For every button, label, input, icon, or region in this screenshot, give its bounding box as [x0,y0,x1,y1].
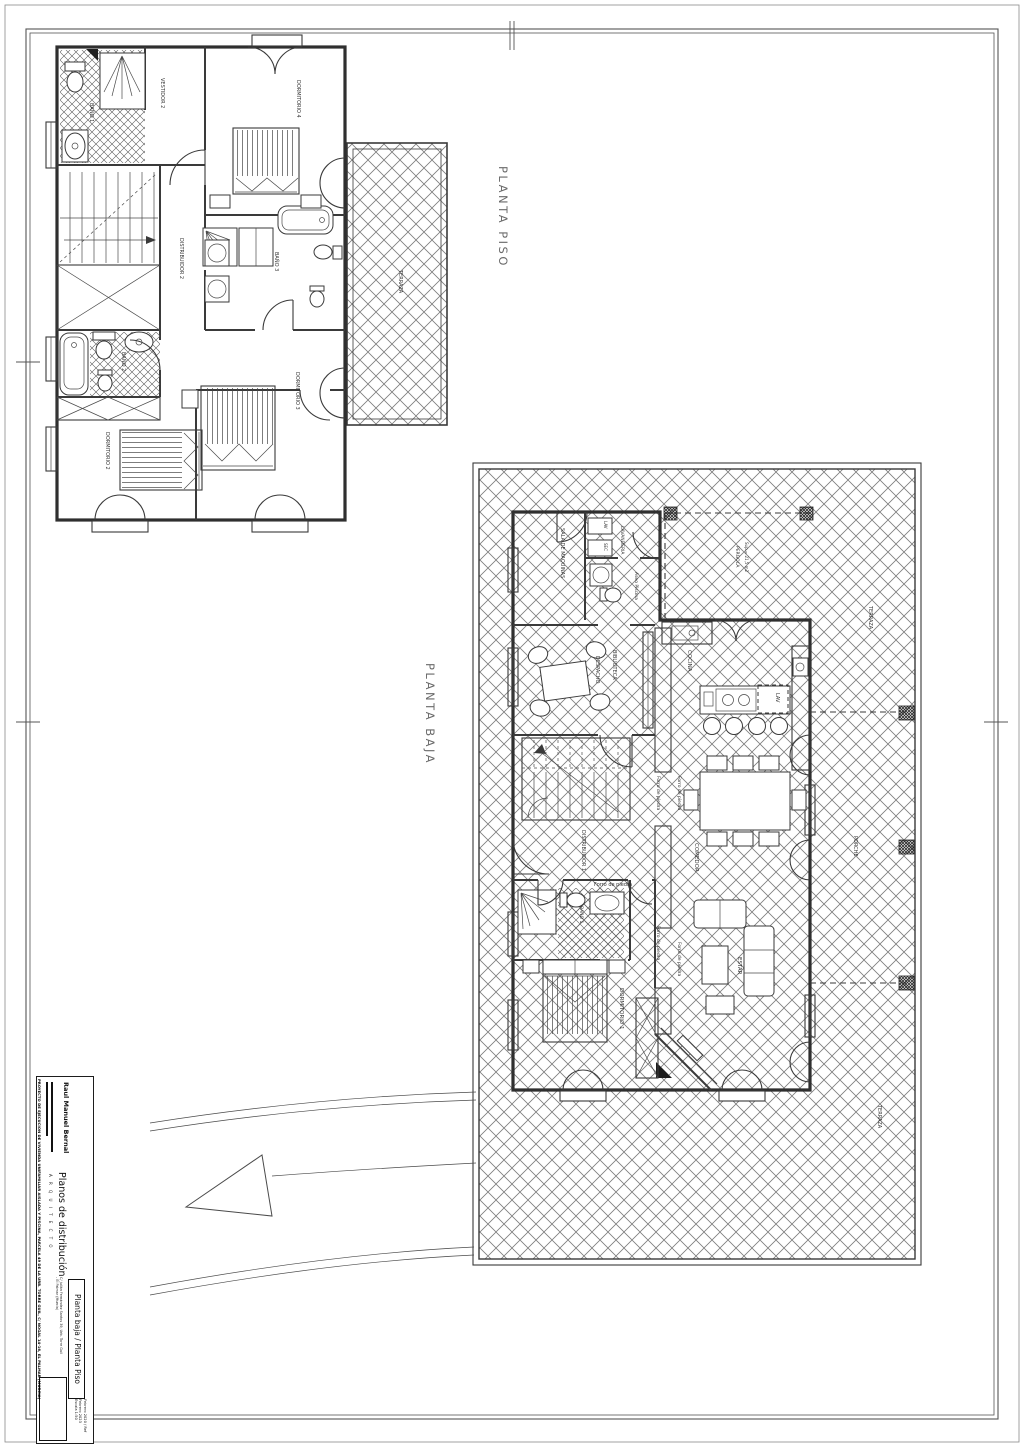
date-ref: Febrero 2020 / Ref Febrero 2023 [78,1399,87,1443]
label-lav-island: LAV [774,693,780,703]
piso-stairs [57,172,160,330]
planta-piso-plan: BAÑO 1 VESTIDOR 2 DORMITORIO 4 DISTRIBUI… [46,35,510,532]
room-label-bano3: BAÑO 3 [273,252,280,271]
piso-bano3 [203,206,342,330]
site-road [150,1092,476,1295]
project-description-line: PROYECTO DE EJECUCION DE VIVIENDA UNIFAM… [37,1079,42,1443]
room-label-bano1-piso: BAÑO 1 [88,103,95,122]
label-pergola-sup: Sup.= 21,5 m2 [744,542,749,573]
room-label-terraza-tr: TERRAZA [867,605,873,630]
plan-title-planta-piso: PLANTA PISO [496,166,510,268]
room-label-porche: PORCHE [852,836,858,857]
piso-bano2 [60,332,160,396]
room-label-bano2: BAÑO 2 [120,352,127,371]
title-block: Raul Manuel Bernal Planos de distribució… [36,1076,94,1444]
room-label-aseo-piscina: Aseo Piscina [633,572,639,600]
date-and-scale: Febrero 2020 / Ref Febrero 2023 Escala 1… [73,1399,87,1443]
label-forro-v2: Forro de piedra [676,776,682,811]
room-label-estar: ESTAR [736,957,742,975]
label-pergola: PERGOLA [734,546,740,568]
piso-bed-dorm4 [210,128,321,208]
title-block-rule-2 [46,1082,48,1136]
room-label-comedor: COMEDOR [693,843,699,872]
room-label-dormitorio4: DORMITORIO 4 [295,80,301,118]
room-label-vestidor2: VESTIDOR 2 [159,78,165,108]
room-label-cocina: COCINA [686,650,692,672]
room-label-terraza-br: TERRAZA [876,1104,882,1129]
room-label-terraza-piso: TERRAZA [397,269,403,294]
label-forro-v3: Forro de piedra [655,926,661,961]
room-label-dormitorio3: DORMITORIO 3 [294,372,300,410]
label-forro-v1: Forro de piedra [655,776,661,811]
piso-bed-dorm2 [120,430,202,490]
piso-windows [46,122,57,471]
drawing-sheet: BAÑO 1 VESTIDOR 2 DORMITORIO 4 DISTRIBUI… [0,0,1024,1447]
room-label-dormitorio2: DORMITORIO 2 [104,432,110,470]
revision-box [39,1377,67,1441]
studio-label: A R Q U I T E C T O [48,1174,53,1250]
room-label-bano1-baja: BAÑO 1 [578,906,585,924]
label-sec: SEC [603,543,608,551]
piso-terraza [347,143,447,425]
label-forro-h: Forro de piedra [594,882,632,888]
room-label-sala-maquinas: SALA DE MAQUINAS [559,528,565,578]
plan-title-planta-baja: PLANTA BAJA [423,663,437,765]
title-block-rule [51,1082,53,1152]
planta-baja-plan: PLANTA BAJA SALA DE MAQUINAS LAVANDERIA … [423,463,921,1265]
label-lav: LAV [603,521,608,529]
room-label-dormitorio1: DORMITORIO 1 [618,988,624,1029]
document-title: Planos de distribución [56,1172,67,1277]
address-line: C/ Julián Fernández Santos 39, Urb. Torr… [55,1277,64,1355]
room-label-distribuidor1: DISTRIBUIDOR 1 [580,830,586,871]
room-label-despacho: DESPACHO [594,656,600,683]
piso-bano1 [60,49,145,163]
label-forro-v4: Forro de piedra [676,942,682,977]
room-label-biblioteca: BIBLIOTECA [611,650,617,680]
piso-closet [57,397,160,420]
room-label-lavanderia: LAVANDERIA [619,526,625,555]
sheet-name-box: Planta baja / Planta Piso [68,1279,85,1399]
architect-name: Raul Manuel Bernal [62,1082,69,1168]
room-label-distribuidor2: DISTRIBUIDOR 2 [178,238,184,279]
